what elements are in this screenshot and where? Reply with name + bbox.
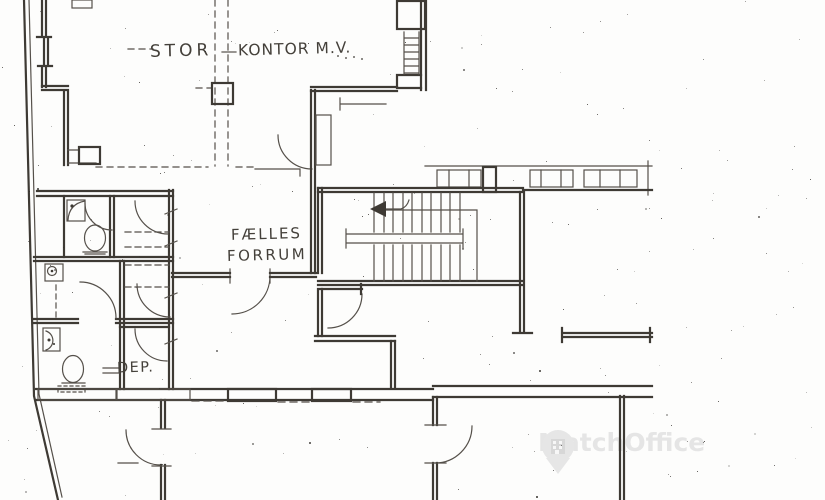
- sink-icon: [43, 328, 60, 351]
- wall-stub-top: [72, 0, 92, 8]
- floor-plan-drawing: [0, 0, 825, 500]
- scanned-floor-plan-page: MatchOffice: [0, 0, 825, 500]
- toilet-icon: [83, 225, 107, 254]
- wall-topleft-inner: [37, 0, 100, 165]
- dashed-shelves: [125, 232, 169, 287]
- sink-icon: [67, 200, 85, 221]
- room-label-stor: STOR: [150, 40, 213, 62]
- room-label-forrum: FORRUM: [227, 245, 308, 265]
- understair-walls: [315, 284, 395, 388]
- door-arcs: [80, 135, 472, 465]
- window-band-top: [425, 161, 652, 195]
- toilet-icon: [58, 356, 85, 393]
- staircase: [346, 193, 477, 281]
- left-wing-wall: [118, 400, 171, 500]
- room-label-kontor: KONTOR M.V.: [238, 39, 352, 60]
- room-label-dep: DEP.: [117, 360, 155, 377]
- sink-icon: [45, 264, 63, 281]
- bottom-facade: [36, 386, 652, 402]
- stair-direction-arrow: [370, 201, 386, 217]
- right-wing-walls: [425, 328, 652, 500]
- room-label-faelles: FÆLLES: [231, 224, 302, 244]
